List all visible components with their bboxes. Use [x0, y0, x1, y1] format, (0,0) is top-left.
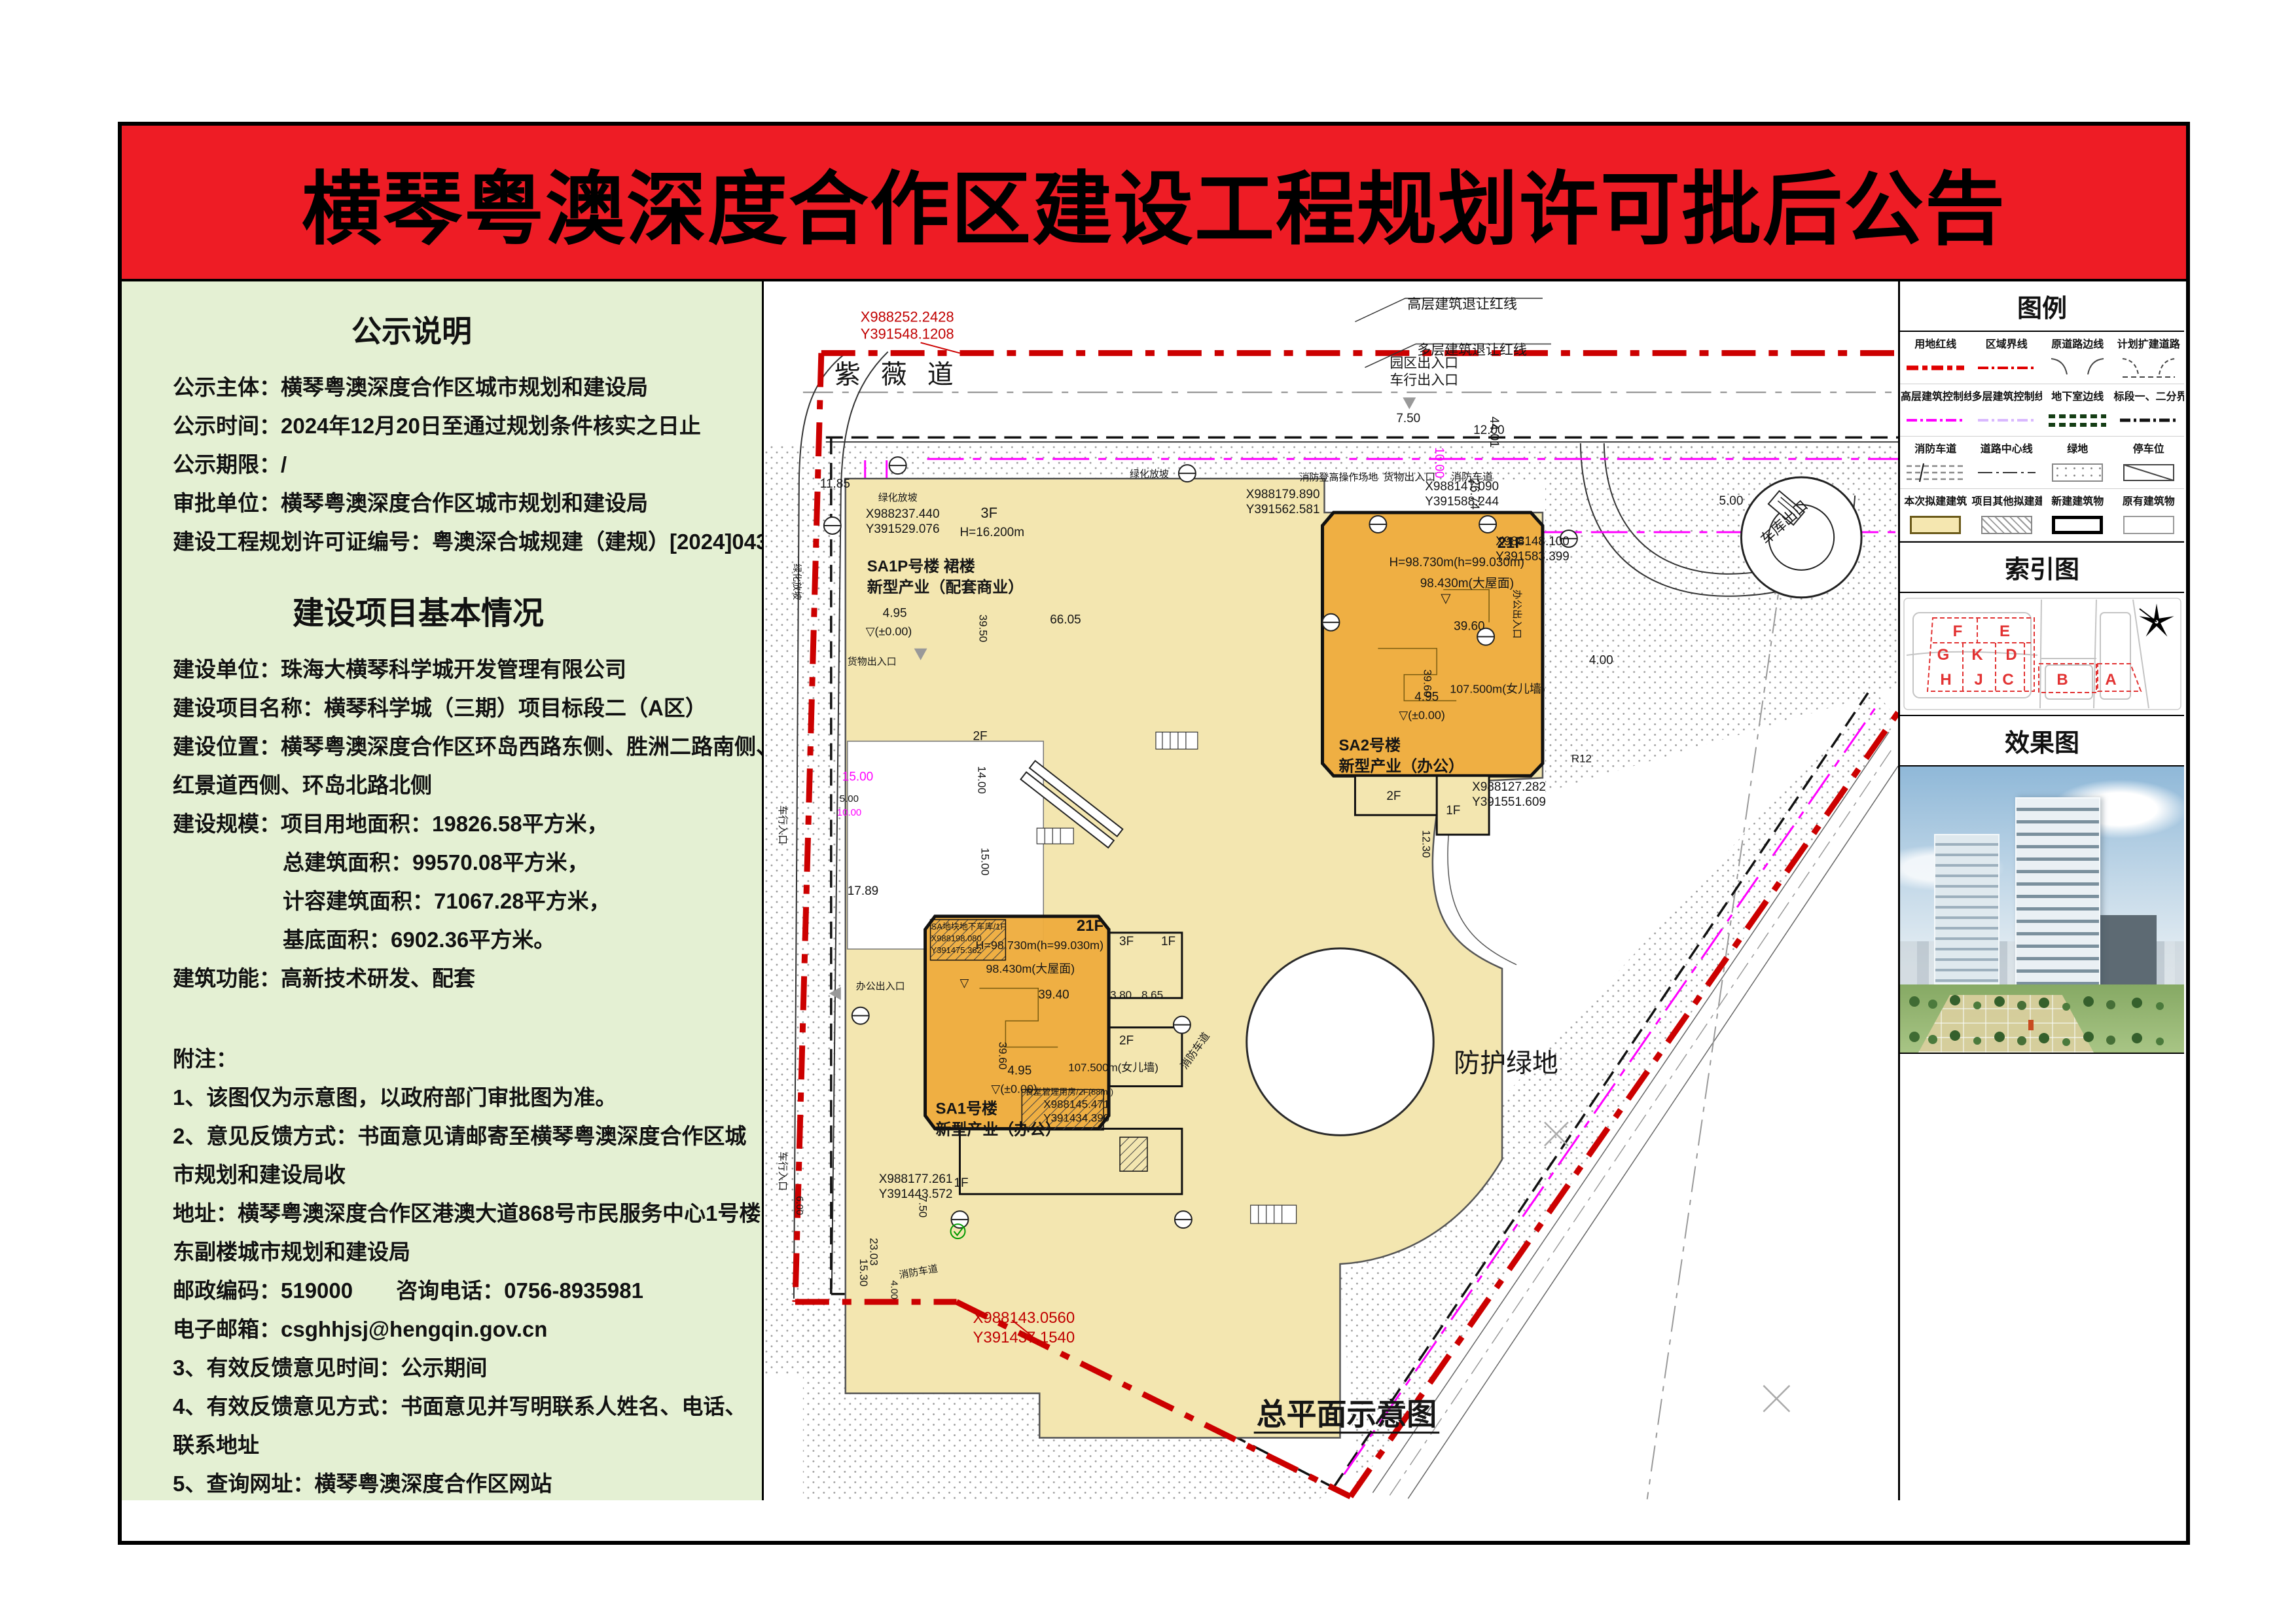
legend-swatch-road-edge [2042, 352, 2113, 384]
svg-text:SA2号楼: SA2号楼 [1338, 736, 1401, 754]
svg-text:绿化放坡: 绿化放坡 [792, 564, 802, 600]
svg-text:Y391588.244: Y391588.244 [1425, 495, 1499, 509]
parcel-letter: E [2000, 623, 2010, 640]
svg-text:4.95: 4.95 [1007, 1064, 1031, 1078]
svg-text:7.50: 7.50 [917, 1196, 929, 1218]
project-line: 基底面积：6902.36平方米。 [173, 920, 742, 959]
note-line: 5、查询网址：横琴粤澳深度合作区网站 [173, 1464, 742, 1500]
project-line: 建设单位：珠海大横琴科学城开发管理有限公司 [173, 650, 742, 689]
note-line: 1、该图仅为示意图，以政府部门审批图为准。 [173, 1078, 742, 1117]
legend-swatch-bldg-proposed [1900, 509, 1971, 541]
notice-line: 公示时间：2024年12月20日至通过规划条件核实之日止 [173, 406, 742, 445]
project-line: 建设项目名称：横琴科学城（三期）项目标段二（A区） [173, 689, 742, 727]
svg-text:X988143.0560: X988143.0560 [973, 1309, 1075, 1327]
svg-text:总平面示意图: 总平面示意图 [1257, 1398, 1437, 1432]
svg-text:98.430m(大屋面): 98.430m(大屋面) [1420, 576, 1514, 590]
svg-text:Y391434.390: Y391434.390 [1043, 1111, 1109, 1124]
svg-text:X988177.261: X988177.261 [879, 1172, 953, 1186]
svg-text:7.50: 7.50 [1396, 412, 1420, 425]
svg-text:紫 薇 道: 紫 薇 道 [834, 360, 960, 389]
svg-text:新型产业（办公）: 新型产业（办公） [1338, 757, 1464, 775]
svg-text:21F: 21F [1077, 917, 1103, 935]
project-line: 红景道西侧、环岛北路北侧 [173, 766, 742, 804]
poster-frame: 横琴粤澳深度合作区建设工程规划许可批后公告 公示说明 公示主体：横琴粤澳深度合作… [118, 122, 2190, 1545]
svg-text:绿化放坡: 绿化放坡 [878, 492, 918, 503]
svg-text:17.89: 17.89 [848, 884, 878, 898]
svg-text:▽: ▽ [960, 977, 969, 990]
render-right-tower [2015, 797, 2100, 987]
legend-swatch-parking [2113, 457, 2185, 489]
svg-text:11.85: 11.85 [820, 477, 850, 491]
note-line: 市规划和建设局收 [173, 1155, 742, 1194]
svg-text:X988198.080: X988198.080 [931, 933, 982, 943]
svg-text:107.500m(女儿墙): 107.500m(女儿墙) [1068, 1062, 1158, 1074]
svg-text:5.00: 5.00 [1719, 494, 1743, 508]
note-line: 4、有效反馈意见方式：书面意见并写明联系人姓名、电话、 [173, 1387, 742, 1426]
svg-text:15.00: 15.00 [978, 848, 991, 875]
site-plan: X988252.2428Y391548.1208紫 薇 道高层建筑退让红线多层建… [764, 281, 1898, 1500]
parcel-letter: A [2105, 671, 2116, 689]
project-section-title: 建设项目基本情况 [173, 587, 742, 633]
parcel-letter: J [1974, 671, 1982, 689]
svg-text:1F: 1F [1446, 804, 1460, 818]
project-line: 建筑功能：高新技术研发、配套 [173, 959, 742, 998]
svg-text:X988145.471: X988145.471 [1043, 1098, 1109, 1110]
note-line: 电子邮箱：csghhjsj@hengqin.gov.cn [173, 1310, 742, 1348]
legend-swatch-green-dash2 [2042, 405, 2113, 437]
svg-text:新型产业（办公）: 新型产业（办公） [936, 1120, 1062, 1138]
notice-line: 审批单位：横琴粤澳深度合作区城市规划和建设局 [173, 484, 742, 522]
announcement-poster: 横琴粤澳深度合作区建设工程规划许可批后公告 公示说明 公示主体：横琴粤澳深度合作… [0, 0, 2296, 1624]
legend-swatch-magenta-dashdot [1900, 405, 1971, 437]
project-line: 计容建筑面积：71067.28平方米， [173, 882, 742, 920]
legend-label: 区域界线 [1971, 332, 2043, 352]
svg-text:39.60: 39.60 [1454, 620, 1484, 634]
svg-text:Y391443.572: Y391443.572 [879, 1187, 953, 1201]
svg-text:R12: R12 [1571, 752, 1592, 765]
svg-text:15.00: 15.00 [842, 770, 873, 784]
note-line: 附注： [173, 1039, 742, 1078]
svg-text:防护绿地: 防护绿地 [1454, 1049, 1558, 1078]
svg-text:办公出入口: 办公出入口 [856, 981, 905, 992]
project-line: 总建筑面积：99570.08平方米， [173, 843, 742, 882]
svg-text:Y391548.1208: Y391548.1208 [861, 325, 954, 342]
legend-swatch-violet-dashdot [1971, 405, 2043, 437]
legend-label: 原有建筑物 [2113, 489, 2185, 509]
notice-line: 公示主体：横琴粤澳深度合作区城市规划和建设局 [173, 368, 742, 406]
svg-text:4.00: 4.00 [1589, 654, 1613, 668]
svg-text:H=98.730m(h=99.030m): H=98.730m(h=99.030m) [975, 939, 1103, 952]
legend-swatch-black-dashdot [2113, 405, 2185, 437]
svg-text:Y391562.581: Y391562.581 [1246, 503, 1320, 516]
svg-text:8.65: 8.65 [1141, 989, 1163, 1001]
svg-text:6.00: 6.00 [794, 1196, 805, 1215]
svg-text:食堂管理用房/2F(88m²): 食堂管理用房/2F(88m²) [1025, 1087, 1113, 1096]
note-line: 东副楼城市规划和建设局 [173, 1233, 742, 1271]
legend-label: 消防车道 [1900, 437, 1971, 457]
index-map: F E G K D H J C B A [1900, 593, 2184, 716]
render-image [1900, 767, 2184, 1054]
note-line: 联系地址 [173, 1426, 742, 1464]
svg-text:X988179.890: X988179.890 [1246, 488, 1320, 501]
side-panel: 图例 用地红线 区域界线 原道路边线 计划扩建道路 [1898, 281, 2184, 1500]
svg-text:98.430m(大屋面): 98.430m(大屋面) [986, 962, 1075, 975]
svg-text:21F: 21F [1498, 534, 1524, 552]
svg-text:39.50: 39.50 [977, 615, 989, 642]
note-line: 3、有效反馈意见时间：公示期间 [173, 1348, 742, 1387]
legend-swatch-road-planned [2113, 352, 2185, 384]
legend-label: 用地红线 [1900, 332, 1971, 352]
svg-text:新型产业（配套商业）: 新型产业（配套商业） [867, 578, 1024, 596]
legend-swatch-red-dashdot [1971, 352, 2043, 384]
svg-text:H=98.730m(h=99.030m): H=98.730m(h=99.030m) [1389, 556, 1524, 569]
legend-label: 新建建筑物 [2042, 489, 2113, 509]
render-trees [1909, 1032, 1920, 1042]
index-map-title: 索引图 [1900, 543, 2184, 593]
legend-swatch-centerline [1971, 457, 2043, 489]
parcel-letter: B [2056, 671, 2068, 689]
svg-text:H=16.200m: H=16.200m [960, 526, 1024, 539]
svg-text:SA1号楼: SA1号楼 [936, 1100, 998, 1117]
note-line: 2、意见反馈方式：书面意见请邮寄至横琴粤澳深度合作区城 [173, 1117, 742, 1155]
svg-text:4.95: 4.95 [1414, 691, 1439, 704]
svg-text:2F: 2F [1119, 1034, 1134, 1048]
svg-text:Y391437.1540: Y391437.1540 [973, 1329, 1075, 1346]
site-plan-drawing: X988252.2428Y391548.1208紫 薇 道高层建筑退让红线多层建… [764, 281, 1898, 1500]
svg-text:3.80: 3.80 [1110, 989, 1132, 1001]
svg-text:12.00: 12.00 [1473, 424, 1504, 437]
legend-label: 计划扩建道路 [2113, 332, 2185, 352]
svg-text:3F: 3F [980, 505, 997, 521]
svg-text:107.500m(女儿墙): 107.500m(女儿墙) [1450, 683, 1545, 696]
project-line: 建设位置：横琴粤澳深度合作区环岛西路东侧、胜洲二路南侧、 [173, 727, 742, 766]
svg-text:车行出入口: 车行出入口 [1390, 372, 1458, 388]
render-left-tower [1934, 834, 2000, 984]
poster-title: 横琴粤澳深度合作区建设工程规划许可批后公告 [302, 145, 2006, 261]
svg-text:高层建筑退让红线: 高层建筑退让红线 [1407, 297, 1517, 312]
parcel-letter: C [2002, 671, 2013, 689]
side-panel-blank [1900, 1054, 2184, 1500]
legend-swatch-red-dash [1900, 352, 1971, 384]
legend-label: 地下室边线 [2042, 384, 2113, 405]
legend-grid: 用地红线 区域界线 原道路边线 计划扩建道路 [1900, 332, 2184, 543]
svg-text:绿化放坡: 绿化放坡 [1130, 469, 1169, 480]
svg-text:X988147.090: X988147.090 [1425, 480, 1499, 494]
svg-text:▽: ▽ [1441, 592, 1451, 606]
svg-text:SA地块地下车库/1F: SA地块地下车库/1F [931, 922, 1006, 931]
svg-text:X988237.440: X988237.440 [866, 507, 940, 521]
svg-text:SA1P号楼 裙楼: SA1P号楼 裙楼 [867, 557, 975, 575]
info-panel: 公示说明 公示主体：横琴粤澳深度合作区城市规划和建设局 公示时间：2024年12… [122, 281, 764, 1500]
svg-text:15.30: 15.30 [857, 1259, 870, 1286]
svg-text:1F: 1F [1161, 935, 1175, 948]
legend-swatch-bldg-new [2042, 509, 2113, 541]
svg-text:5.00: 5.00 [840, 793, 859, 804]
svg-text:消防登高操作场地: 消防登高操作场地 [1300, 472, 1378, 483]
svg-text:2F: 2F [1386, 789, 1401, 803]
legend-label: 原道路边线 [2042, 332, 2113, 352]
svg-text:车行入口: 车行入口 [777, 1151, 788, 1191]
svg-text:Y391529.076: Y391529.076 [866, 522, 940, 536]
notice-line: 公示期限：/ [173, 445, 742, 484]
legend-label: 本次拟建建筑 [1900, 489, 1971, 509]
legend-label: 绿地 [2042, 437, 2113, 457]
svg-text:10.00: 10.00 [837, 807, 861, 818]
legend-label: 多层建筑控制线 [1971, 384, 2043, 405]
svg-text:车行入口: 车行入口 [777, 805, 788, 844]
parcel-letter: F [1953, 623, 1963, 640]
svg-text:X988127.282: X988127.282 [1472, 780, 1546, 794]
poster-content: 公示说明 公示主体：横琴粤澳深度合作区城市规划和建设局 公示时间：2024年12… [122, 281, 2186, 1500]
svg-text:货物出入口: 货物出入口 [848, 657, 897, 668]
legend-label: 项目其他拟建建筑 [1971, 489, 2043, 509]
svg-text:园区出入口: 园区出入口 [1390, 355, 1458, 370]
svg-text:66.05: 66.05 [1050, 613, 1081, 627]
legend-label: 高层建筑控制线 [1900, 384, 1971, 405]
legend-swatch-bldg-other [1971, 509, 2043, 541]
project-line: 建设规模：项目用地面积：19826.58平方米， [173, 804, 742, 843]
svg-text:12.30: 12.30 [1420, 830, 1432, 857]
svg-text:39.40: 39.40 [1038, 988, 1069, 1002]
svg-text:1F: 1F [954, 1176, 968, 1190]
legend-swatch-bldg-existing [2113, 509, 2185, 541]
notice-line: 建设工程规划许可证编号：粤澳深合城规建（建规）[2024]043号 [173, 522, 742, 561]
notice-section-title: 公示说明 [173, 308, 742, 351]
parcel-letter: G [1937, 646, 1950, 664]
note-line: 地址：横琴粤澳深度合作区港澳大道868号市民服务中心1号楼 [173, 1194, 742, 1233]
render-sculpture [2028, 1020, 2034, 1030]
render-title: 效果图 [1900, 716, 2184, 767]
note-line: 邮政编码：519000 咨询电话：0756-8935981 [173, 1271, 742, 1310]
legend-label: 标段一、二分界线 [2113, 384, 2185, 405]
tower-sa1 [925, 916, 1182, 1194]
parcel-letter: H [1940, 671, 1951, 689]
svg-text:Y391551.609: Y391551.609 [1472, 795, 1546, 809]
parcel-letter: D [2005, 646, 2017, 664]
svg-text:X988252.2428: X988252.2428 [861, 309, 954, 325]
legend-swatch-fire-lane [1900, 457, 1971, 489]
svg-text:2F: 2F [973, 729, 987, 743]
svg-text:Y391475.362: Y391475.362 [931, 945, 982, 955]
svg-text:4.95: 4.95 [883, 607, 907, 621]
legend-label: 停车位 [2113, 437, 2185, 457]
legend-title: 图例 [1900, 281, 2184, 332]
parcel-letter: K [1971, 646, 1983, 664]
svg-text:3F: 3F [1119, 935, 1134, 948]
render-trees [1909, 996, 1920, 1007]
svg-text:14.00: 14.00 [975, 766, 988, 793]
svg-text:办公出入口: 办公出入口 [1511, 590, 1522, 639]
svg-text:▽(±0.00): ▽(±0.00) [866, 625, 912, 638]
svg-text:▽(±0.00): ▽(±0.00) [1399, 708, 1445, 721]
legend-swatch-green-space [2042, 457, 2113, 489]
legend-label: 道路中心线 [1971, 437, 2043, 457]
title-banner: 横琴粤澳深度合作区建设工程规划许可批后公告 [122, 126, 2186, 281]
svg-text:4.00: 4.00 [889, 1280, 900, 1299]
